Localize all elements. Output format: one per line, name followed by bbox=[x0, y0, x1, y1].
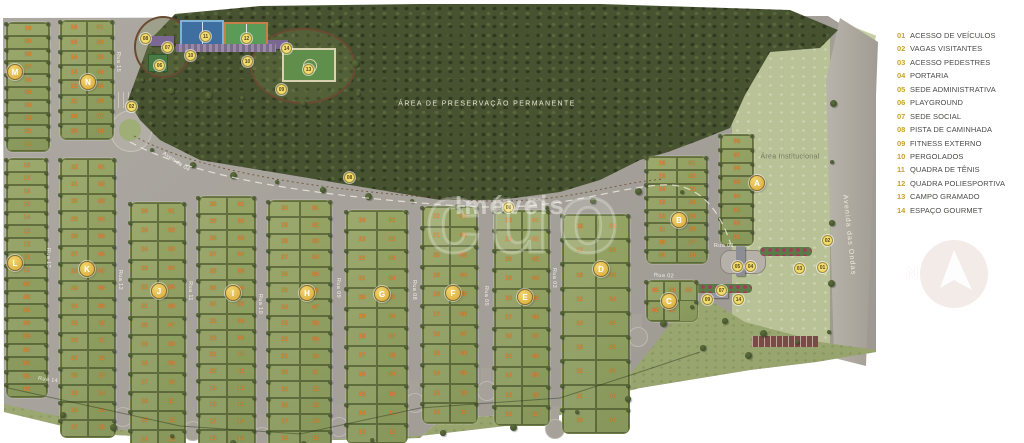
lot: 11 bbox=[377, 404, 407, 423]
lot: 21 bbox=[131, 298, 158, 317]
lot: 09 bbox=[88, 298, 115, 315]
legend-item-12: 12QUADRA POLIESPORTIVA bbox=[897, 179, 1022, 192]
lot: 28 bbox=[199, 230, 227, 247]
tree bbox=[58, 35, 62, 39]
tree bbox=[182, 259, 186, 263]
lot: 12 bbox=[7, 238, 47, 251]
tree bbox=[46, 35, 50, 39]
tree bbox=[718, 134, 722, 138]
tree bbox=[335, 20, 341, 26]
street-label-rua-11: Rua 11 bbox=[187, 281, 193, 301]
tree bbox=[110, 50, 114, 54]
lot: 22 bbox=[347, 250, 377, 269]
tree bbox=[644, 196, 648, 200]
tree bbox=[128, 278, 132, 282]
lot: 29 bbox=[61, 211, 88, 228]
lot: 01 bbox=[377, 211, 407, 230]
tree bbox=[690, 305, 694, 309]
lot: 28 bbox=[61, 229, 88, 246]
lot: 04 bbox=[88, 211, 115, 228]
legend-item-label: CAMPO GRAMADO bbox=[910, 192, 980, 201]
tree bbox=[829, 220, 835, 226]
street-label-rua-09: Rua 09 bbox=[335, 278, 341, 298]
tree bbox=[4, 383, 8, 387]
tree bbox=[420, 226, 424, 230]
amenity-marker-03: 03 bbox=[794, 263, 805, 274]
block-k: 3201310230032904280527062607250824092310… bbox=[60, 158, 116, 438]
lot: 01 bbox=[7, 384, 47, 397]
lot: 14 bbox=[61, 51, 87, 66]
tree bbox=[252, 313, 256, 317]
lot: 16 bbox=[61, 21, 87, 36]
tree bbox=[410, 199, 414, 203]
legend-item-number: 11 bbox=[897, 165, 910, 174]
tree bbox=[58, 245, 62, 249]
lot: 01 bbox=[7, 138, 49, 151]
tree bbox=[168, 88, 174, 94]
lot: 02 bbox=[88, 176, 115, 193]
street-label-rua-15: Rua 15 bbox=[115, 52, 121, 72]
tree bbox=[44, 383, 48, 387]
lot: 19 bbox=[269, 381, 300, 397]
legend-item-label: ACESSO PEDESTRES bbox=[910, 58, 990, 67]
lot: 17 bbox=[423, 305, 450, 325]
tree bbox=[112, 384, 116, 388]
lot: 07 bbox=[450, 325, 477, 345]
lot: 05 bbox=[300, 267, 331, 283]
lot: 02 bbox=[300, 217, 331, 233]
tree bbox=[190, 162, 196, 168]
tree bbox=[182, 278, 186, 282]
lot: 10 bbox=[227, 347, 255, 364]
lot: 06 bbox=[596, 336, 629, 360]
legend-item-05: 05SEDE ADMINISTRATIVA bbox=[897, 85, 1022, 98]
lot: 04 bbox=[596, 288, 629, 312]
amenity-marker-12: 12 bbox=[241, 33, 252, 44]
lot: 01 bbox=[300, 201, 331, 217]
lot: 14 bbox=[347, 404, 377, 423]
tree bbox=[196, 246, 200, 250]
lot: 13 bbox=[647, 197, 677, 210]
lot: 02 bbox=[7, 125, 49, 138]
lot: 09 bbox=[7, 278, 47, 291]
lot: 20 bbox=[199, 364, 227, 381]
lot: 07 bbox=[300, 299, 331, 315]
lot: 15 bbox=[88, 402, 115, 419]
tree bbox=[420, 265, 424, 269]
tree bbox=[150, 148, 154, 152]
tree bbox=[44, 211, 48, 215]
tree bbox=[128, 240, 132, 244]
tree bbox=[266, 233, 270, 237]
lot: 03 bbox=[7, 113, 49, 126]
legend-item-06: 06PLAYGROUND bbox=[897, 98, 1022, 111]
tree bbox=[58, 109, 62, 113]
block-badge-m: M bbox=[7, 64, 23, 80]
tree bbox=[492, 366, 496, 370]
tree bbox=[328, 397, 332, 401]
legend-item-label: QUADRA POLIESPORTIVA bbox=[910, 179, 1005, 188]
legend: 01ACESSO DE VEÍCULOS02VAGAS VISITANTES03… bbox=[897, 31, 1022, 219]
legend-item-label: SEDE SOCIAL bbox=[910, 112, 961, 121]
lot: 24 bbox=[61, 298, 88, 315]
block-h: 3001290228032704260525062407230822092110… bbox=[268, 200, 332, 443]
lot: 12 bbox=[423, 403, 450, 423]
tree bbox=[644, 249, 648, 253]
tree bbox=[110, 424, 117, 431]
lot: 08 bbox=[7, 49, 49, 62]
tree bbox=[128, 202, 132, 206]
tree bbox=[4, 277, 8, 281]
lot: 12 bbox=[563, 360, 596, 384]
tree bbox=[328, 315, 332, 319]
street-label-rua-12: Rua 12 bbox=[117, 270, 123, 290]
lot: 14 bbox=[7, 212, 47, 225]
tree bbox=[474, 383, 478, 387]
lot: 06 bbox=[522, 308, 549, 327]
tree bbox=[196, 263, 200, 267]
lot: 15 bbox=[7, 199, 47, 212]
block-badge-k: K bbox=[79, 261, 95, 277]
legend-item-number: 12 bbox=[897, 179, 910, 188]
tree bbox=[404, 365, 408, 369]
lot: 29 bbox=[199, 214, 227, 231]
lot: 13 bbox=[300, 398, 331, 414]
block-l: 181716151413121110090807060504030201 bbox=[6, 158, 48, 398]
tree bbox=[694, 280, 698, 284]
legend-item-label: QUADRA DE TÊNIS bbox=[910, 165, 980, 174]
lot: 15 bbox=[563, 288, 596, 312]
legend-item-08: 08PISTA DE CAMINHADA bbox=[897, 125, 1022, 138]
lot: 18 bbox=[131, 354, 158, 373]
lot: 09 bbox=[227, 330, 255, 347]
lot: 08 bbox=[677, 250, 707, 263]
amenity-marker-05: 05 bbox=[732, 261, 743, 272]
tree bbox=[266, 364, 270, 368]
tree bbox=[546, 288, 550, 292]
lot: 15 bbox=[131, 411, 158, 430]
tree bbox=[44, 317, 48, 321]
tree bbox=[4, 35, 8, 39]
tree bbox=[560, 287, 564, 291]
legend-item-04: 04PORTARIA bbox=[897, 71, 1022, 84]
lot: 02 bbox=[721, 218, 753, 232]
lot: 07 bbox=[158, 317, 185, 336]
lot: 25 bbox=[269, 283, 300, 299]
preservation-area-label: ÁREA DE PRESERVAÇÃO PERMANENTE bbox=[398, 101, 576, 108]
legend-item-number: 14 bbox=[897, 206, 910, 215]
lot: 25 bbox=[61, 281, 88, 298]
tree bbox=[205, 92, 212, 99]
tree bbox=[680, 190, 684, 194]
lot: 04 bbox=[7, 100, 49, 113]
lot: 14 bbox=[423, 364, 450, 384]
tree bbox=[760, 330, 767, 337]
lot: 15 bbox=[647, 170, 677, 183]
amenity-marker-09: 09 bbox=[702, 294, 713, 305]
lot: 12 bbox=[300, 381, 331, 397]
amenity-marker-04: 04 bbox=[745, 261, 756, 272]
lot: 19 bbox=[131, 335, 158, 354]
lot: 10 bbox=[563, 409, 596, 433]
lot: 03 bbox=[300, 234, 331, 250]
lot: 08 bbox=[721, 135, 753, 149]
tree bbox=[830, 160, 834, 164]
tree bbox=[46, 48, 50, 52]
tree bbox=[404, 423, 408, 427]
lot: 32 bbox=[61, 159, 88, 176]
lot: 24 bbox=[347, 211, 377, 230]
lot: 12 bbox=[377, 424, 407, 443]
lot: 26 bbox=[199, 264, 227, 281]
tree bbox=[830, 100, 837, 107]
amenity-marker-10: 10 bbox=[185, 50, 196, 61]
tree bbox=[266, 266, 270, 270]
lot: 25 bbox=[131, 222, 158, 241]
tree bbox=[44, 370, 48, 374]
lot: 27 bbox=[269, 250, 300, 266]
tree bbox=[182, 221, 186, 225]
lot: 03 bbox=[158, 241, 185, 260]
legend-item-number: 09 bbox=[897, 139, 910, 148]
tree bbox=[420, 383, 424, 387]
lot: 01 bbox=[227, 197, 255, 214]
tree bbox=[404, 210, 408, 214]
street-label-rua-05: Rua 05 bbox=[483, 286, 489, 306]
tree bbox=[644, 300, 648, 304]
lot: 23 bbox=[199, 314, 227, 331]
tree bbox=[344, 384, 348, 388]
block-m: 10090807060504030201 bbox=[6, 22, 50, 152]
tree bbox=[182, 297, 186, 301]
tree bbox=[110, 94, 114, 98]
tree bbox=[196, 396, 200, 400]
lot: 19 bbox=[61, 385, 88, 402]
tree bbox=[718, 162, 722, 166]
tree bbox=[4, 317, 8, 321]
lot: 31 bbox=[61, 176, 88, 193]
amenity-marker-07: 07 bbox=[716, 285, 727, 296]
lot: 12 bbox=[227, 380, 255, 397]
lot: 09 bbox=[377, 366, 407, 385]
tree bbox=[112, 193, 116, 197]
tree bbox=[328, 364, 332, 368]
lot: 15 bbox=[423, 344, 450, 364]
tree bbox=[404, 326, 408, 330]
amenity-marker-02: 02 bbox=[126, 101, 137, 112]
amenity-marker-11: 11 bbox=[200, 31, 211, 42]
amenity-marker-06: 06 bbox=[154, 60, 165, 71]
watermark-brand: Imóveis bbox=[455, 190, 566, 221]
lot: 28 bbox=[269, 234, 300, 250]
lot: 09 bbox=[61, 124, 87, 139]
lot: 23 bbox=[131, 260, 158, 279]
lot: 05 bbox=[7, 87, 49, 100]
tree bbox=[196, 313, 200, 317]
lot: 08 bbox=[158, 335, 185, 354]
lot: 04 bbox=[300, 250, 331, 266]
block-badge-c: C bbox=[661, 293, 677, 309]
block-badge-b: B bbox=[671, 212, 687, 228]
lot: 10 bbox=[300, 349, 331, 365]
tree bbox=[266, 430, 270, 434]
tree bbox=[275, 180, 279, 184]
block-badge-l: L bbox=[7, 255, 23, 271]
tree bbox=[196, 196, 200, 200]
tree bbox=[750, 162, 754, 166]
cul-de-sac bbox=[628, 327, 648, 347]
street-label-rua-10: Rua 10 bbox=[257, 294, 263, 314]
tree bbox=[328, 266, 332, 270]
lot: 05 bbox=[7, 331, 47, 344]
tree bbox=[404, 268, 408, 272]
tree bbox=[58, 419, 62, 423]
lot: 26 bbox=[131, 203, 158, 222]
lot: 02 bbox=[377, 230, 407, 249]
lot: 30 bbox=[61, 194, 88, 211]
lot: 08 bbox=[596, 385, 629, 409]
lot: 06 bbox=[87, 95, 113, 110]
amenity-marker-08: 08 bbox=[344, 172, 355, 183]
tree bbox=[266, 348, 270, 352]
legend-item-label: ESPAÇO GOURMET bbox=[910, 206, 983, 215]
amenity-marker-07: 07 bbox=[162, 42, 173, 53]
north-arrow-icon bbox=[920, 240, 988, 308]
lot: 16 bbox=[423, 325, 450, 345]
tree bbox=[252, 363, 256, 367]
tree bbox=[474, 285, 478, 289]
tree bbox=[626, 384, 630, 388]
lot: 20 bbox=[61, 368, 88, 385]
lot: 13 bbox=[563, 336, 596, 360]
tree bbox=[110, 35, 114, 39]
legend-item-02: 02VAGAS VISITANTES bbox=[897, 44, 1022, 57]
lot: 01 bbox=[87, 21, 113, 36]
tree bbox=[266, 200, 270, 204]
lot: 02 bbox=[158, 222, 185, 241]
lot: 05 bbox=[227, 264, 255, 281]
lot: 13 bbox=[227, 397, 255, 414]
tree bbox=[128, 259, 132, 263]
tree bbox=[58, 50, 62, 54]
tree bbox=[252, 346, 256, 350]
tree bbox=[58, 79, 62, 83]
lot: 03 bbox=[721, 204, 753, 218]
legend-item-13: 13CAMPO GRAMADO bbox=[897, 192, 1022, 205]
tree bbox=[4, 86, 8, 90]
lot: 23 bbox=[61, 315, 88, 332]
tree bbox=[4, 251, 8, 255]
tree bbox=[370, 438, 374, 442]
street-label-rua-13: Rua 13 bbox=[45, 248, 51, 268]
lot: 09 bbox=[596, 409, 629, 433]
legend-item-label: ACESSO DE VEÍCULOS bbox=[910, 31, 996, 40]
lot: 21 bbox=[61, 350, 88, 367]
north-label: N bbox=[906, 264, 918, 284]
tree bbox=[110, 20, 114, 24]
institutional-buildings bbox=[752, 336, 818, 347]
block-badge-g: G bbox=[374, 286, 390, 302]
lot: 07 bbox=[522, 328, 549, 347]
lot: 17 bbox=[495, 308, 522, 327]
legend-item-number: 03 bbox=[897, 58, 910, 67]
tree bbox=[365, 193, 372, 200]
lot: 07 bbox=[7, 304, 47, 317]
lot: 15 bbox=[61, 36, 87, 51]
lot: 10 bbox=[522, 386, 549, 405]
lot: 21 bbox=[347, 269, 377, 288]
tree bbox=[44, 198, 48, 202]
tree bbox=[252, 396, 256, 400]
tree bbox=[560, 311, 564, 315]
street-label-rua-08: Rua 08 bbox=[411, 280, 417, 300]
lot: 12 bbox=[158, 411, 185, 430]
lot: 23 bbox=[269, 316, 300, 332]
legend-item-label: PISTA DE CAMINHADA bbox=[910, 125, 992, 134]
lot: 14 bbox=[227, 414, 255, 431]
tree bbox=[704, 249, 708, 253]
tree bbox=[266, 282, 270, 286]
lot: 11 bbox=[88, 333, 115, 350]
lot: 15 bbox=[495, 347, 522, 366]
tree bbox=[58, 228, 62, 232]
tree bbox=[492, 288, 496, 292]
block-badge-n: N bbox=[80, 74, 96, 90]
tree bbox=[344, 423, 348, 427]
tree bbox=[510, 424, 517, 431]
legend-item-number: 13 bbox=[897, 192, 910, 201]
lot: 02 bbox=[677, 170, 707, 183]
lot: 07 bbox=[596, 360, 629, 384]
tree bbox=[58, 297, 62, 301]
lot: 06 bbox=[158, 298, 185, 317]
lot: 01 bbox=[158, 203, 185, 222]
lot: 14 bbox=[495, 367, 522, 386]
lot: 13 bbox=[423, 384, 450, 404]
tree bbox=[644, 236, 648, 240]
amenity-marker-13: 13 bbox=[303, 64, 314, 75]
tree bbox=[344, 365, 348, 369]
lot: 02 bbox=[227, 214, 255, 231]
lot: 08 bbox=[300, 316, 331, 332]
tree bbox=[320, 187, 326, 193]
lot: 21 bbox=[199, 347, 227, 364]
tree bbox=[704, 196, 708, 200]
tree bbox=[4, 99, 8, 103]
lot: 15 bbox=[347, 385, 377, 404]
lot: 10 bbox=[7, 23, 49, 36]
tree bbox=[344, 326, 348, 330]
tree bbox=[196, 346, 200, 350]
lot: 06 bbox=[377, 308, 407, 327]
tree bbox=[644, 156, 648, 160]
tree bbox=[4, 158, 8, 162]
tree bbox=[112, 228, 116, 232]
lot: 08 bbox=[450, 344, 477, 364]
tree bbox=[128, 221, 132, 225]
lot: 14 bbox=[563, 312, 596, 336]
legend-item-10: 10PERGOLADOS bbox=[897, 152, 1022, 165]
lot: 04 bbox=[158, 260, 185, 279]
lot: 22 bbox=[61, 333, 88, 350]
lot: 16 bbox=[269, 431, 300, 443]
lot: 18 bbox=[269, 398, 300, 414]
lot: 18 bbox=[347, 327, 377, 346]
tree bbox=[644, 280, 648, 284]
tree bbox=[828, 280, 835, 287]
lot: 14 bbox=[131, 430, 158, 443]
lot: 18 bbox=[7, 159, 47, 172]
